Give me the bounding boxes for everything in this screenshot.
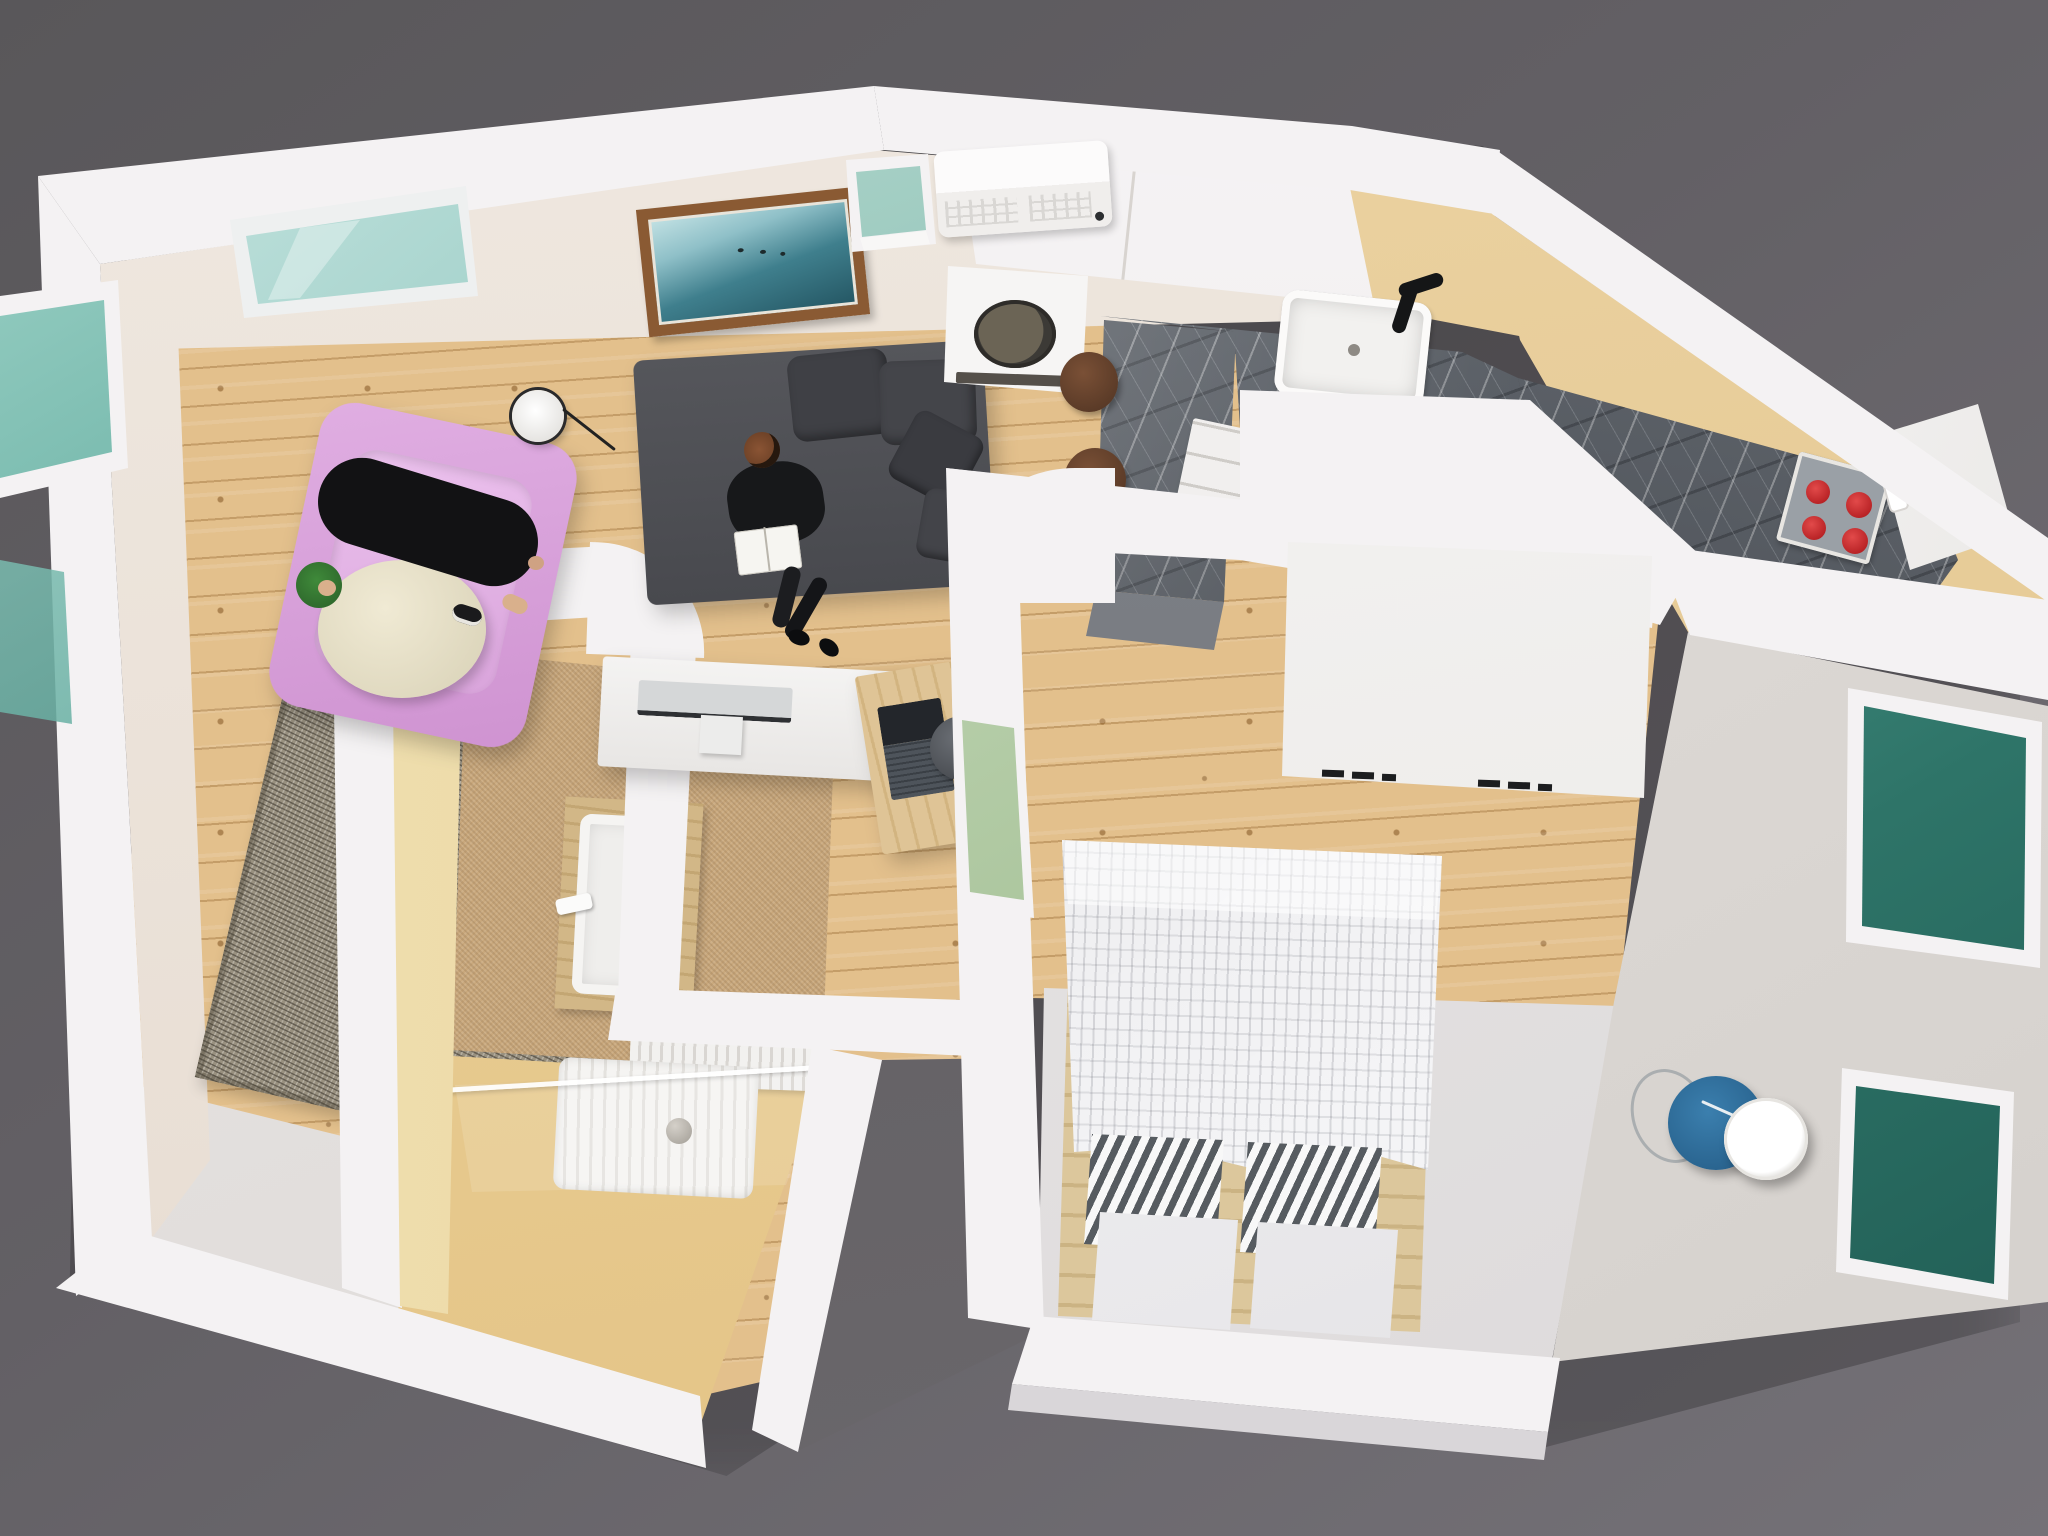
ac-vent-right (1028, 191, 1092, 221)
wardrobe-vent-4 (1478, 780, 1500, 788)
pouf (318, 560, 486, 698)
wardrobe-vent-5 (1508, 782, 1530, 790)
wardrobe-vent-2 (1352, 772, 1374, 780)
bedside-lamp (1724, 1098, 1808, 1180)
picture-bird-2 (760, 250, 766, 255)
armchair-person-face (318, 580, 336, 596)
bar-stool-a (1060, 352, 1118, 412)
cooktop-knob-4 (1842, 528, 1868, 554)
armchair-person-hand (528, 556, 544, 570)
cooktop-knob-1 (1806, 480, 1830, 504)
picture-bird-1 (738, 248, 744, 253)
wardrobe-vent-1 (1322, 770, 1344, 778)
sofa-person-head (744, 432, 780, 468)
sofa-back-cushion-1 (786, 347, 894, 443)
ac-vent-left (945, 196, 1019, 227)
floor-plan-render (0, 0, 2048, 1536)
cooktop-knob-3 (1802, 516, 1826, 540)
monitor-stand (699, 715, 743, 755)
floor-lamp (512, 390, 564, 442)
cooktop-knob-2 (1846, 492, 1872, 518)
picture (636, 187, 870, 338)
wardrobe-vent-3 (1382, 774, 1396, 781)
wardrobe-vent-6 (1538, 784, 1552, 791)
ac-unit (933, 140, 1113, 238)
range-hood-plate (974, 300, 1056, 368)
ac-indicator (1095, 211, 1105, 221)
picture-bird-3 (780, 252, 785, 257)
